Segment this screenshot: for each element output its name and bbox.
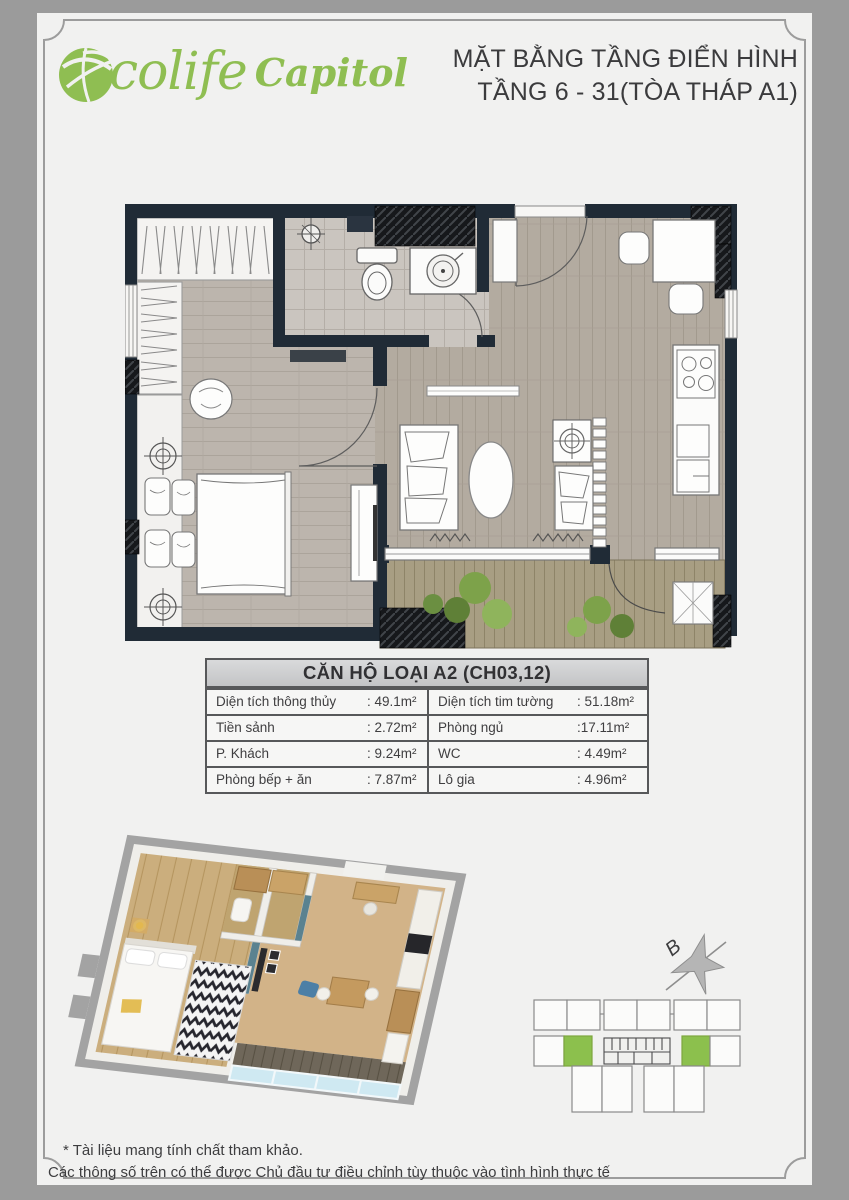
window-right <box>725 290 737 338</box>
area-value: : 4.49m² <box>575 742 647 766</box>
pillow-3d <box>157 952 188 970</box>
floor-plan-2d <box>125 190 745 655</box>
area-value: : 4.96m² <box>575 768 647 792</box>
lintel-block <box>347 216 373 232</box>
balcony-equipment-box <box>673 582 713 624</box>
shoe-cabinet <box>493 220 517 282</box>
area-value: : 7.87m² <box>365 768 427 792</box>
yellow-cushion <box>121 999 142 1013</box>
document-page: colife Capitol MẶT BẰNG TẦNG ĐIỂN HÌNH T… <box>37 13 812 1185</box>
page-title-line1: MẶT BẰNG TẦNG ĐIỂN HÌNH <box>453 43 798 76</box>
sink-icon <box>410 248 476 294</box>
sofa <box>400 425 458 530</box>
area-value: : 51.18m² <box>575 690 647 714</box>
area-label: Diện tích thông thủy <box>207 690 365 714</box>
apartment-area-table: CĂN HỘ LOẠI A2 (CH03,12) Diện tích thông… <box>205 658 649 794</box>
highlighted-unit-ch12 <box>564 1036 592 1066</box>
area-value: : 9.24m² <box>365 742 427 766</box>
apartment-3d-view <box>62 822 492 1152</box>
table-title: CĂN HỘ LOẠI A2 (CH03,12) <box>207 660 647 688</box>
closet-strip <box>137 282 182 394</box>
area-label: Lô gia <box>427 768 575 792</box>
area-label: Tiền sảnh <box>207 716 365 740</box>
area-label: Diện tích tim tường <box>427 690 575 714</box>
brochure-page: { "header": { "logo": { "part1": "colife… <box>0 0 849 1200</box>
page-title: MẶT BẰNG TẦNG ĐIỂN HÌNH TẦNG 6 - 31(TÒA … <box>453 43 798 109</box>
disclaimer-line2: Các thông số trên có thể được Chủ đầu tư… <box>48 1162 610 1184</box>
bath-cabinet <box>234 867 271 893</box>
stove-3d <box>405 933 433 954</box>
picture-frame <box>265 963 277 973</box>
table-row: Diện tích thông thủy : 49.1m² Diện tích … <box>207 688 647 714</box>
picture-frame <box>269 950 281 960</box>
table-3d <box>327 977 370 1008</box>
compass-north-label: B <box>661 935 685 961</box>
area-label: WC <box>427 742 575 766</box>
hall-bench <box>427 386 519 396</box>
highlighted-unit-ch03 <box>682 1036 710 1066</box>
area-value: : 49.1m² <box>365 690 427 714</box>
logo-text-ecolife: colife <box>109 42 247 102</box>
window-left <box>125 285 137 357</box>
logo-text-capitol: Capitol <box>255 50 408 95</box>
wardrobe <box>137 218 282 280</box>
core-block <box>604 1038 670 1064</box>
compass: B <box>661 930 729 997</box>
area-label: P. Khách <box>207 742 365 766</box>
armchair <box>555 466 593 530</box>
key-plan-units <box>534 1000 740 1112</box>
tv-cabinet <box>351 485 377 581</box>
disclaimer-line1: * Tài liệu mang tính chất tham khảo. <box>48 1140 610 1162</box>
table-row: P. Khách : 9.24m² WC : 4.49m² <box>207 740 647 766</box>
floor-lamp <box>553 420 591 462</box>
closet-3d <box>269 870 308 894</box>
kitchen-counter <box>673 345 719 495</box>
bath-mat <box>290 350 346 362</box>
coffee-table <box>469 442 513 518</box>
area-label: Phòng ngủ <box>427 716 575 740</box>
ecolife-capitol-logo: colife Capitol <box>53 39 408 105</box>
page-title-line2: TẦNG 6 - 31(TÒA THÁP A1) <box>453 76 798 109</box>
pillow-3d <box>125 948 156 966</box>
area-value: :17.11m² <box>575 716 647 740</box>
area-label: Phòng bếp + ăn <box>207 768 365 792</box>
disclaimer: * Tài liệu mang tính chất tham khảo. Các… <box>48 1140 610 1184</box>
bedroom-chair <box>190 379 232 419</box>
balcony-window <box>385 548 719 560</box>
building-key-plan: B <box>528 928 756 1123</box>
area-value: : 2.72m² <box>365 716 427 740</box>
table-row: Tiền sảnh : 2.72m² Phòng ngủ :17.11m² <box>207 714 647 740</box>
table-row: Phòng bếp + ăn : 7.87m² Lô gia : 4.96m² <box>207 766 647 792</box>
